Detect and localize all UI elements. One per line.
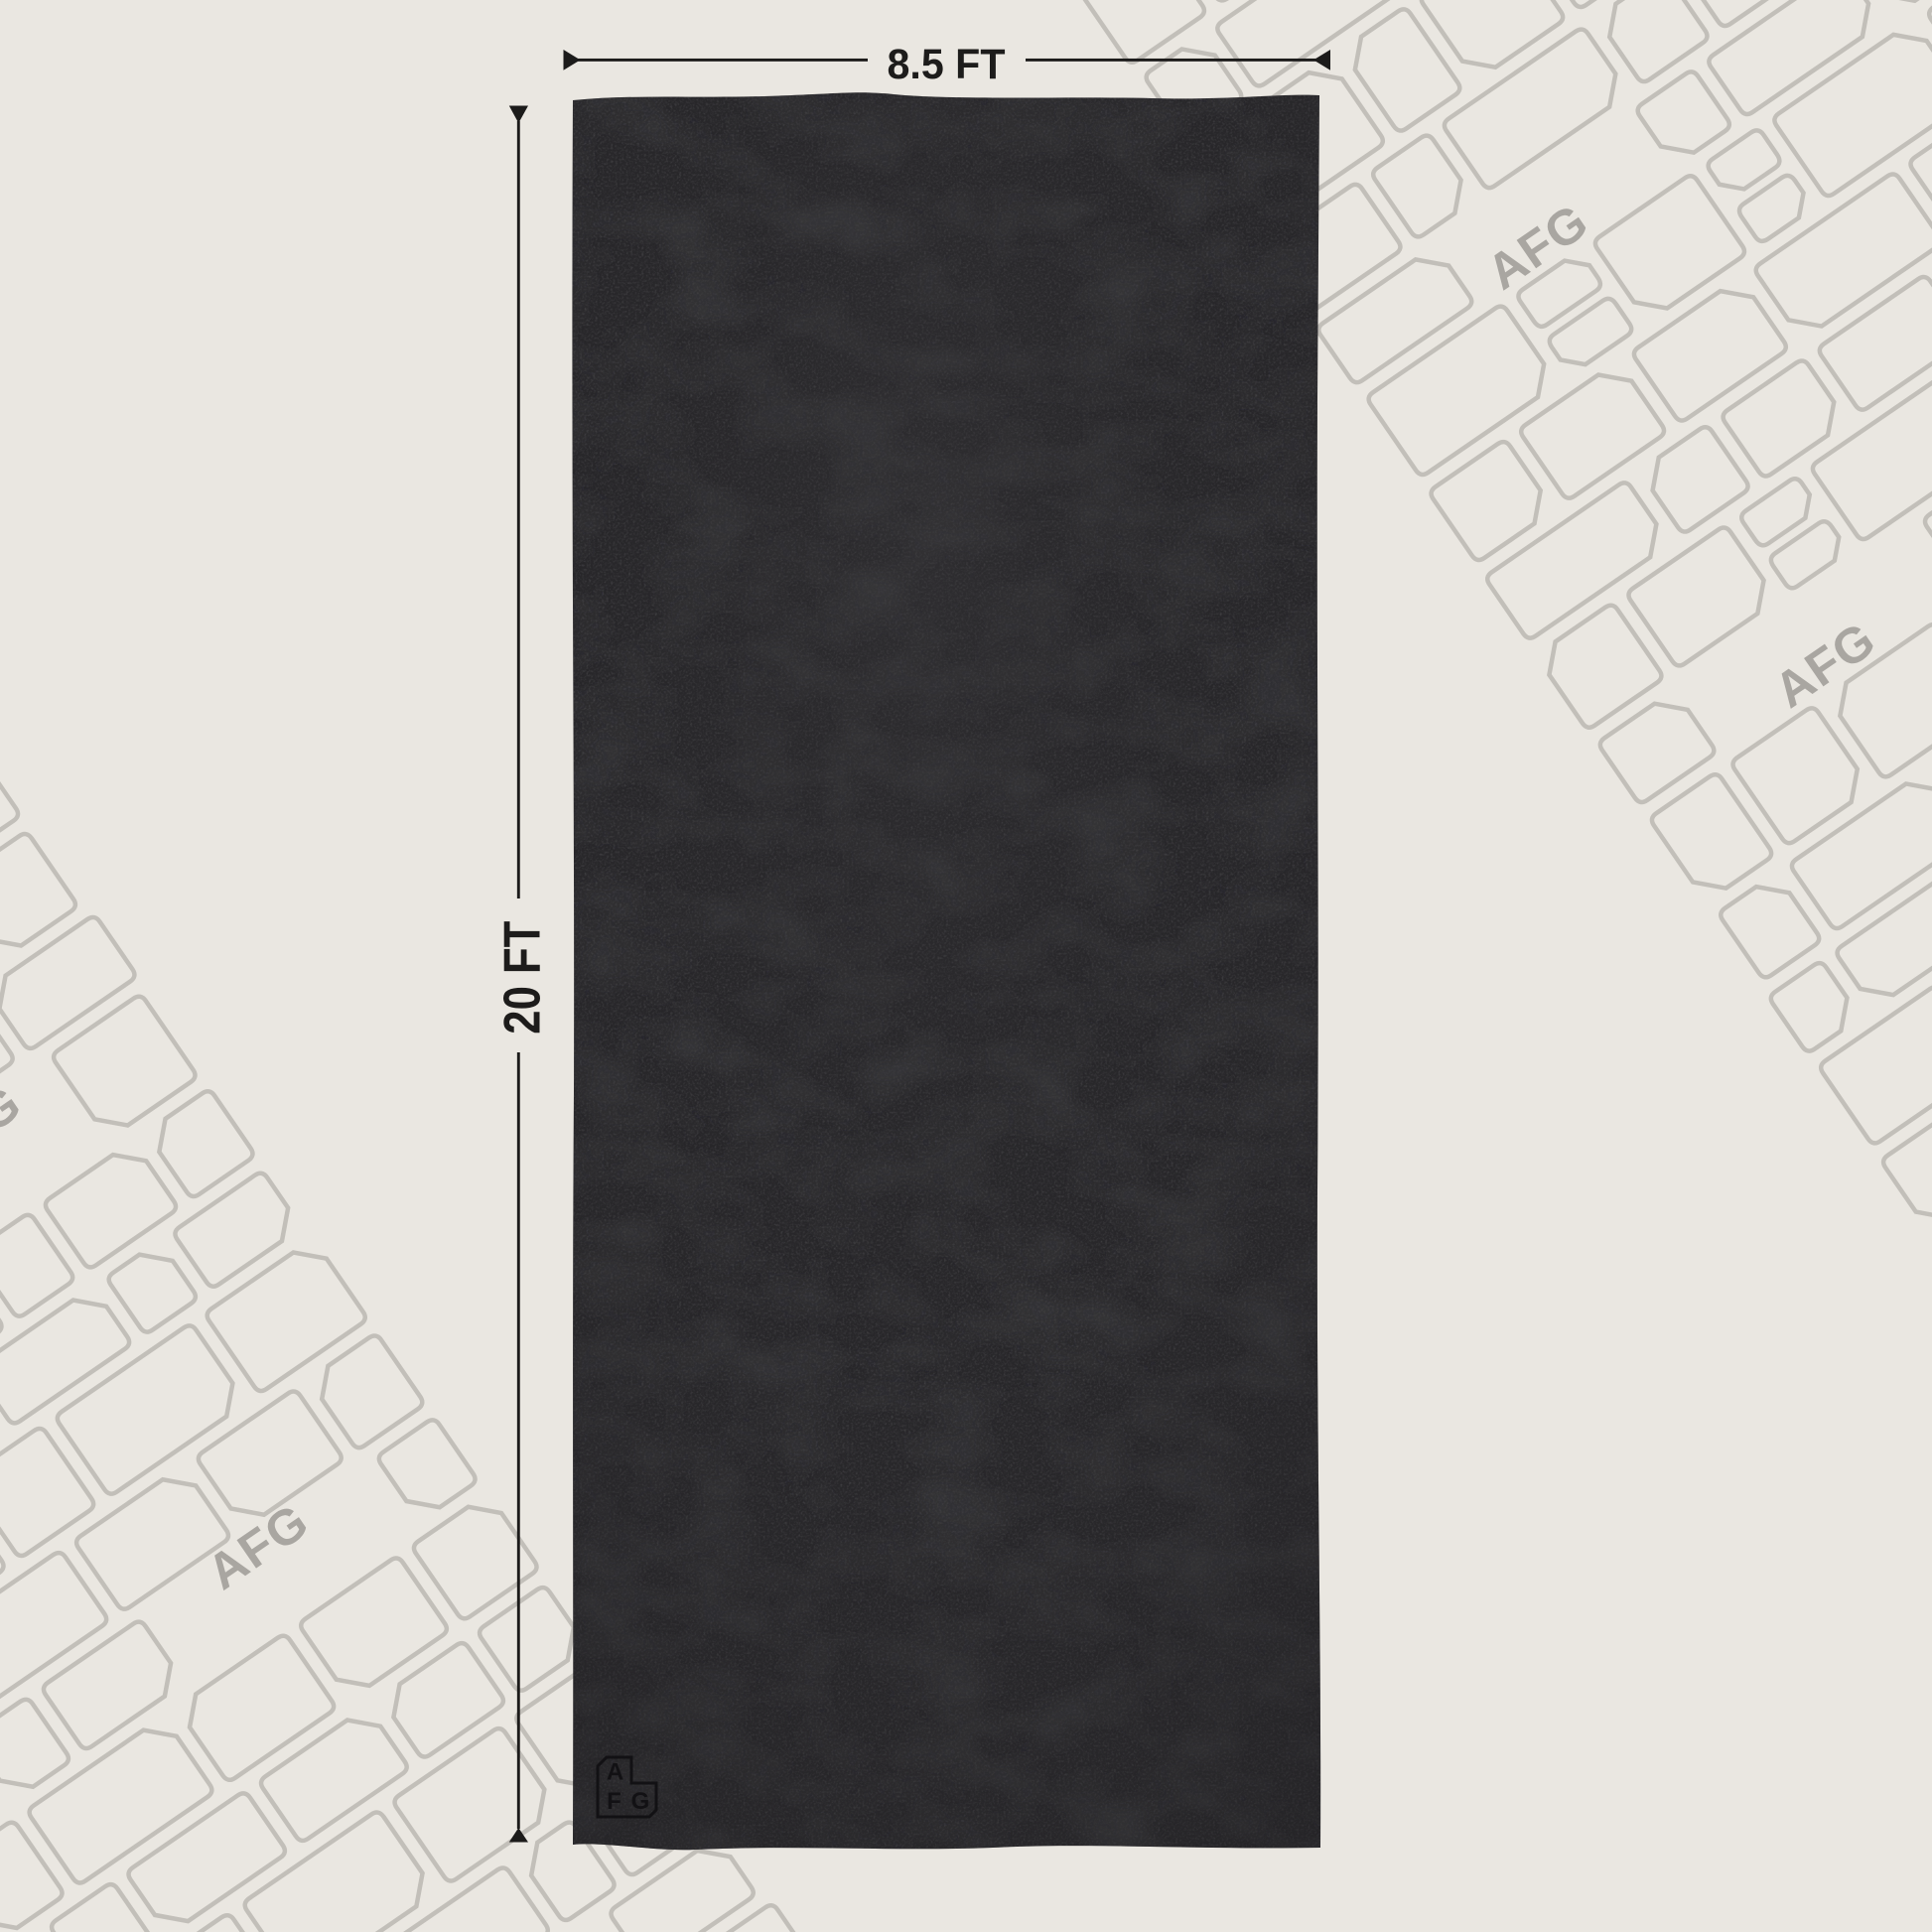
svg-text:A: A (607, 1759, 623, 1786)
svg-text:F: F (607, 1788, 621, 1815)
svg-text:8.5 FT: 8.5 FT (888, 41, 1006, 88)
svg-text:20 FT: 20 FT (494, 921, 552, 1035)
svg-text:G: G (631, 1788, 650, 1815)
